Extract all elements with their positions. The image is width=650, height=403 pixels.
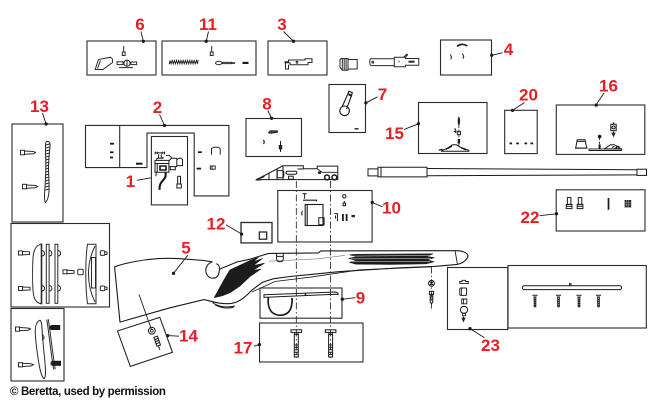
- svg-text:4: 4: [504, 40, 514, 59]
- svg-text:13: 13: [30, 97, 49, 116]
- svg-text:15: 15: [385, 124, 404, 143]
- svg-text:11: 11: [199, 15, 217, 34]
- svg-text:14: 14: [179, 327, 198, 346]
- svg-text:8: 8: [262, 95, 271, 114]
- svg-text:© Beretta, used by permission: © Beretta, used by permission: [10, 386, 166, 398]
- svg-text:9: 9: [356, 289, 365, 308]
- svg-text:2: 2: [153, 98, 162, 117]
- svg-text:12: 12: [207, 215, 226, 234]
- svg-text:7: 7: [378, 85, 387, 104]
- svg-text:22: 22: [521, 208, 540, 227]
- svg-text:3: 3: [277, 15, 286, 34]
- svg-text:17: 17: [234, 339, 253, 358]
- svg-text:10: 10: [382, 199, 401, 218]
- svg-text:1: 1: [126, 172, 135, 191]
- svg-text:20: 20: [519, 86, 538, 105]
- svg-text:5: 5: [181, 239, 190, 258]
- svg-text:23: 23: [481, 336, 500, 355]
- svg-text:16: 16: [599, 77, 618, 96]
- svg-text:6: 6: [135, 15, 144, 34]
